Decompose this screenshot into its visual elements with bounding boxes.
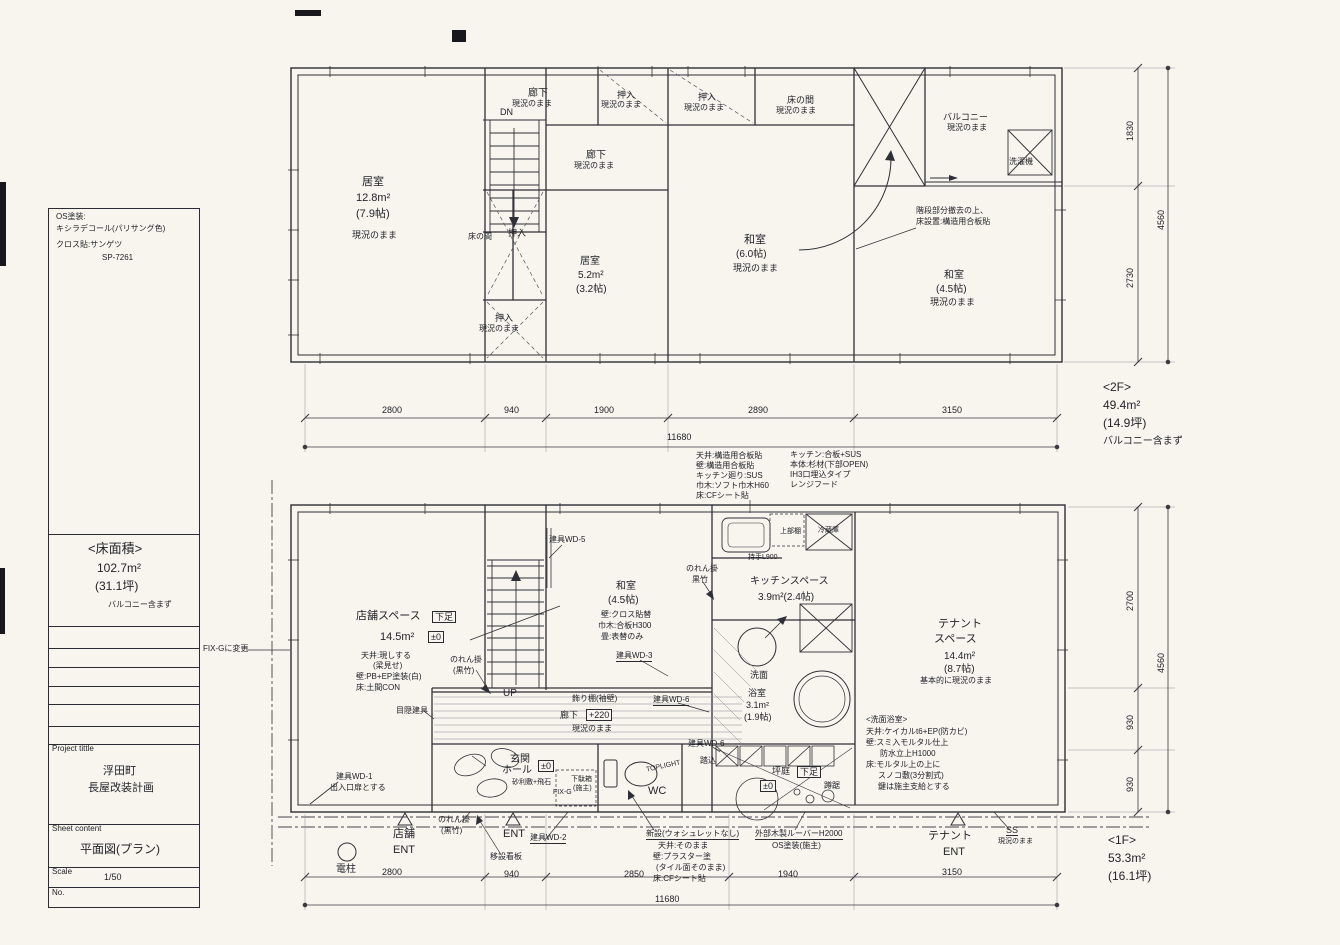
2f-corridor-top: 廊下 — [528, 88, 548, 99]
2f-washer-label: 洗濯機 — [1009, 158, 1033, 167]
2f-balcony-asis: 現況のまま — [947, 124, 987, 133]
1f-rdim-930a: 930 — [1125, 715, 1135, 730]
project-name-line1: 浮田町 — [103, 765, 136, 777]
2f-washitsu6-tatami: (6.0帖) — [736, 249, 767, 260]
1f-handle-label: 持手L900 — [748, 554, 778, 562]
scale-label: Scale — [52, 868, 72, 877]
tb-divider — [49, 887, 199, 888]
2f-rdim-2730: 2730 — [1125, 268, 1135, 288]
1f-shop-note2: (梁見せ) — [373, 662, 402, 671]
scale-value: 1/50 — [104, 872, 122, 882]
1f-bath-spec-5: スノコ敷(3分割式) — [878, 772, 944, 781]
2f-room1-area: 12.8m² — [356, 192, 390, 204]
floor-area-title: <床面積> — [88, 542, 142, 557]
1f-noren-kitchen: のれん掛 — [686, 565, 718, 574]
floor-plan-sheet: OS塗装: キシラデコール(パリサング色) クロス貼:サンゲツ SP-7261 … — [0, 0, 1340, 945]
1f-dim-1940: 1940 — [778, 869, 798, 879]
1f-floor-tsubo: (16.1坪) — [1108, 870, 1151, 883]
1f-denchu-label: 電柱 — [336, 864, 356, 875]
2f-closet-bottom-asis: 現況のまま — [479, 325, 519, 334]
1f-washitsu-tatami: (4.5帖) — [608, 595, 639, 606]
tb-divider — [49, 534, 199, 535]
title-block — [48, 208, 200, 908]
1f-tsubo-level: ±0 — [760, 780, 776, 792]
1f-corridor-level: +220 — [586, 709, 612, 721]
1f-washitsu-note1: 壁:クロス貼替 — [601, 611, 651, 620]
1f-genkan-level: ±0 — [538, 760, 554, 772]
2f-stair — [483, 120, 546, 232]
tb-divider — [49, 704, 199, 705]
2f-floor-tsubo: (14.9坪) — [1103, 417, 1146, 430]
1f-corridor-asis: 現況のまま — [572, 725, 612, 734]
kitchen-spec-c1l2: 壁:構造用合板貼 — [696, 462, 754, 471]
1f-bath-name: 浴室 — [748, 688, 766, 698]
2f-room2-area: 5.2m² — [578, 270, 604, 281]
1f-fix-change-note: FIX-Gに変更 — [203, 645, 248, 654]
2f-room1-asis: 現況のまま — [352, 230, 397, 240]
2f-washer-box — [930, 130, 1052, 181]
2f-corridor-mid: 廊下 — [586, 150, 606, 161]
1f-tenant-name1: テナント — [938, 618, 982, 630]
sheet-no-label: No. — [52, 889, 64, 898]
kitchen-spec-c1l5: 床:CFシート貼 — [696, 492, 749, 501]
paint-spec-label: OS塗装: — [56, 213, 86, 222]
cloth-spec-code: SP-7261 — [102, 254, 133, 263]
kitchen-spec-c2l1: キッチン:合板+SUS — [790, 451, 861, 460]
kitchen-spec-c1l1: 天井:構造用合板貼 — [696, 452, 762, 461]
sheet-content-label: Sheet content — [52, 825, 101, 834]
1f-tenant-area: 14.4m² — [944, 651, 975, 662]
1f-kitchen-area: 3.9m²(2.4帖) — [758, 592, 814, 603]
1f-genkan-name2: ホール — [502, 765, 532, 776]
kitchen-spec-c2l3: IH3口埋込タイプ — [790, 471, 850, 480]
1f-noren-kitchen-material: 黒竹 — [692, 576, 708, 585]
1f-bath-spec-3: 防水立上H1000 — [880, 750, 936, 759]
1f-wd3-label: 建具WD-3 — [616, 652, 652, 662]
1f-bath-spec-2: 壁:スミ入モルタル仕上 — [866, 739, 948, 748]
1f-wd2-label: 建具WD-2 — [530, 834, 566, 844]
1f-shop-note1: 天井:現しする — [361, 652, 411, 661]
1f-bath-spec-6: 鍵は施主支給とする — [878, 783, 950, 792]
1f-noren-label: のれん掛 — [450, 656, 482, 665]
1f-wc-note3: (タイル面そのまま) — [656, 864, 725, 873]
1f-wc-note2: 壁:プラスター塗 — [653, 853, 711, 862]
1f-dim-940: 940 — [504, 869, 519, 879]
2f-balcony-name: バルコニー — [943, 112, 988, 122]
2f-tokonoma-right: 床の間 — [787, 95, 814, 105]
1f-shop-ent-name: 店舗 — [393, 828, 415, 840]
plan-linework — [0, 0, 1340, 945]
2f-dim-2890: 2890 — [748, 405, 768, 415]
kitchen-spec-c1l3: キッチン廻り:SUS — [696, 472, 763, 481]
2f-washitsu45-asis: 現況のまま — [930, 297, 975, 307]
project-name-line2: 長屋改装計画 — [88, 782, 154, 794]
1f-wc-label: WC — [648, 785, 666, 797]
1f-up-label: UP — [503, 688, 517, 699]
floor-area-value: 102.7m² — [97, 562, 141, 575]
1f-upper-shelf-label: 上部棚 — [780, 528, 801, 536]
1f-fixg-label: FIX-G — [553, 789, 572, 797]
tb-divider — [49, 648, 199, 649]
2f-closet-mid: 押入 — [508, 228, 526, 238]
floor-area-note: バルコニー含まず — [108, 601, 172, 610]
1f-main-ent: ENT — [503, 828, 525, 840]
1f-shop-tag: 下足 — [432, 611, 456, 623]
1f-bath-spec-title: <洗面浴室> — [866, 716, 907, 725]
1f-tenant-note: 基本的に現況のまま — [920, 677, 992, 686]
2f-dim-3150: 3150 — [942, 405, 962, 415]
tb-divider — [49, 686, 199, 687]
2f-room2-name: 居室 — [580, 256, 600, 267]
floor-area-tsubo: (31.1坪) — [95, 580, 138, 593]
1f-getabako-owner: (施主) — [573, 785, 592, 793]
2f-washitsu45-name: 和室 — [944, 270, 964, 281]
1f-shop-level: ±0 — [428, 631, 444, 643]
2f-stair-note-line2: 床設置:構造用合板貼 — [916, 218, 990, 227]
2f-room1-name: 居室 — [362, 176, 384, 188]
1f-tsukubai-label: 蹲踞 — [824, 782, 840, 791]
1f-floor-area: 53.3m² — [1108, 852, 1145, 865]
2f-door-swing — [799, 150, 916, 250]
1f-senmen-label: 洗面 — [750, 670, 768, 680]
1f-wc-new-note: 新設(ウォシュレットなし) — [646, 830, 739, 840]
1f-wd5-label: 建具WD-5 — [549, 536, 585, 545]
1f-bath-spec-4: 床:モルタル上の上に — [866, 761, 940, 770]
1f-genkan-name1: 玄関 — [510, 754, 530, 765]
1f-wd1-label: 建具WD-1 — [336, 773, 372, 782]
1f-shop-note3: 壁:PB+EP塗装(白) — [356, 673, 422, 682]
2f-dn-label: DN — [500, 107, 513, 117]
1f-shop-name: 店舗スペース — [356, 610, 421, 622]
2f-closet-right-asis: 現況のまま — [684, 104, 724, 113]
2f-corridor-mid-asis: 現況のまま — [574, 162, 614, 171]
1f-kazaridana-label: 飾り棚(袖壁) — [572, 695, 617, 704]
1f-wc-note1: 天井:そのまま — [658, 842, 708, 851]
2f-void-brace — [854, 68, 925, 186]
2f-tokonoma-right-asis: 現況のまま — [776, 107, 816, 116]
1f-mekakushi-label: 目隠建具 — [396, 707, 428, 716]
1f-noren-out-label: のれん掛 — [438, 816, 470, 825]
2f-stair-note-line1: 階段部分撤去の上、 — [916, 207, 988, 216]
2f-closet-top-asis: 現況のまま — [601, 101, 641, 110]
1f-kanban-label: 移設看板 — [490, 853, 522, 862]
1f-washitsu-note3: 畳:表替のみ — [601, 633, 643, 642]
1f-tenant-ent: ENT — [943, 846, 965, 858]
sheet-content-value: 平面図(プラン) — [80, 843, 160, 856]
1f-genkan-note: 砂利敷+飛石 — [512, 779, 551, 787]
1f-getabako-label: 下駄箱 — [571, 776, 592, 784]
1f-noren-material: (黒竹) — [453, 667, 474, 676]
2f-corridor-top-asis: 現況のまま — [512, 100, 552, 109]
2f-room1-tatami: (7.9帖) — [356, 208, 390, 220]
1f-dim-3150: 3150 — [942, 867, 962, 877]
kitchen-spec-c2l2: 本体:杉材(下部OPEN) — [790, 461, 868, 470]
2f-washitsu45-tatami: (4.5帖) — [936, 284, 967, 295]
1f-shop-area: 14.5m² — [380, 631, 414, 643]
2f-tokonoma-left: 床の間 — [468, 233, 492, 242]
tb-divider — [49, 726, 199, 727]
1f-shop-ent: ENT — [393, 844, 415, 856]
1f-bath-tatami: (1.9帖) — [744, 712, 772, 722]
1f-wd1-note: 出入口扉とする — [330, 784, 386, 793]
tb-divider — [49, 667, 199, 668]
1f-corridor-name: 廊下 — [560, 710, 578, 720]
1f-wd6a-label: 建具WD-6 — [653, 696, 689, 706]
1f-louver-note2: OS塗装(施主) — [772, 842, 821, 851]
2f-washitsu6-name: 和室 — [744, 234, 766, 246]
2f-closet-top: 押入 — [617, 90, 635, 100]
utility-pole-symbol — [338, 843, 356, 861]
2f-floor-note: バルコニー含まず — [1103, 436, 1183, 447]
kitchen-spec-c2l4: レンジフード — [790, 481, 838, 490]
1f-fridge-label: 冷蔵庫 — [818, 527, 839, 535]
2f-closet-bottom: 押入 — [495, 313, 513, 323]
2f-rdim-1830: 1830 — [1125, 121, 1135, 141]
project-title-label: Project tittle — [52, 745, 94, 754]
1f-wd6b-label: 建具WD-6 — [688, 740, 724, 749]
1f-washitsu-name: 和室 — [616, 581, 636, 592]
2f-dim-940: 940 — [504, 405, 519, 415]
1f-tsubo-name: 坪庭 — [772, 766, 790, 776]
1f-rdim-2700: 2700 — [1125, 591, 1135, 611]
1f-floor-label: <1F> — [1108, 834, 1136, 847]
1f-ss-asis: 現況のまま — [998, 838, 1033, 846]
2f-floor-area: 49.4m² — [1103, 399, 1140, 412]
1f-wc-note4: 床:CFシート貼 — [653, 875, 706, 884]
1f-tenant-tatami: (8.7帖) — [944, 664, 975, 675]
tb-divider — [49, 626, 199, 627]
paint-spec-value: キシラデコール(パリサング色) — [56, 225, 165, 234]
1f-tenant-name2: スペース — [934, 633, 977, 645]
1f-dim-2800: 2800 — [382, 867, 402, 877]
2f-dim-1900: 1900 — [594, 405, 614, 415]
2f-dim-total: 11680 — [667, 432, 691, 442]
2f-closet-right: 押入 — [698, 92, 716, 102]
1f-fumikomi-label: 踏込 — [700, 757, 716, 766]
1f-noren-out-material: (黒竹) — [441, 827, 462, 836]
2f-room2-tatami: (3.2帖) — [576, 284, 607, 295]
1f-louver-note1: 外部木製ルーバーH2000 — [755, 830, 843, 840]
2f-floor-label: <2F> — [1103, 381, 1131, 394]
1f-washitsu-note2: 巾木:合板H300 — [598, 622, 651, 631]
kitchen-spec-c1l4: 巾木:ソフト巾木H60 — [696, 482, 769, 491]
1f-kitchen-name: キッチンスペース — [750, 576, 829, 587]
1f-tsubo-tag: 下足 — [797, 766, 821, 778]
1f-ss-label: SS — [1006, 825, 1018, 836]
2f-rdim-total: 4560 — [1156, 210, 1166, 230]
1f-tenant-ent-name: テナント — [928, 830, 972, 842]
1f-rdim-total: 4560 — [1156, 653, 1166, 673]
1f-shop-note4: 床:土間CON — [356, 684, 400, 693]
2f-washitsu6-asis: 現況のまま — [733, 263, 778, 273]
2f-closet-diagonals — [487, 70, 753, 358]
cloth-spec-value: クロス貼:サンゲツ — [56, 241, 122, 250]
1f-rdim-930b: 930 — [1125, 777, 1135, 792]
2f-dim-2800: 2800 — [382, 405, 402, 415]
1f-bath-area: 3.1m² — [746, 700, 769, 710]
1f-bath-spec-1: 天井:ケイカルt6+EP(防カビ) — [866, 728, 967, 737]
1f-dim-total: 11680 — [655, 894, 679, 904]
1f-dim-2850: 2850 — [624, 869, 644, 879]
